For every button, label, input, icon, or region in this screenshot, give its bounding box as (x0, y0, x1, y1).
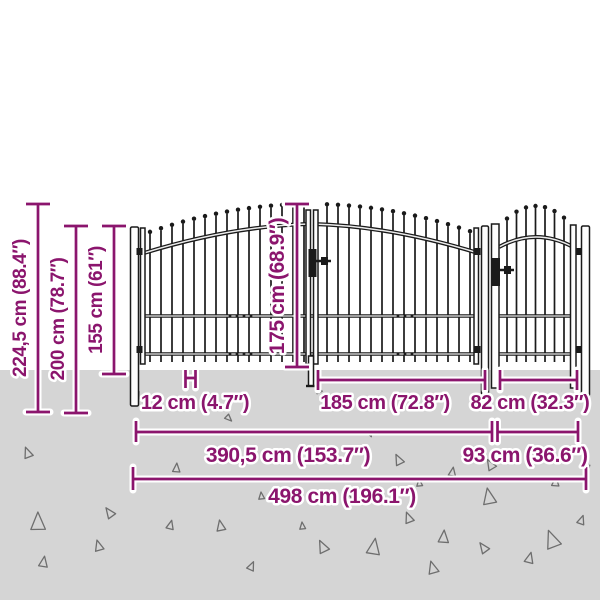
triangle-decoration (448, 466, 457, 477)
label-post-width: 12 cm (4.7″) (141, 392, 249, 414)
center-latch-knob (321, 257, 328, 265)
triangle-decoration (403, 511, 414, 524)
fence-rails (142, 224, 576, 355)
triangle-decoration (438, 529, 450, 543)
triangle-decoration (103, 505, 116, 519)
label-overall-width: 498 cm (196.1″) (268, 485, 416, 508)
right-post (582, 226, 590, 396)
triangle-decoration (94, 539, 104, 551)
label-double-gate-width: 390,5 cm (153.7″) (206, 444, 370, 467)
label-gate-leaf-width: 185 cm (72.8″) (320, 392, 450, 414)
rail-fastener-dots (229, 315, 414, 356)
triangle-decoration (166, 519, 176, 530)
label-single-leaf-width: 82 cm (32.3″) (471, 392, 590, 414)
triangle-decoration (577, 514, 587, 525)
diagram-canvas: 224,5 cm (88.4″) 200 cm (78.7″) 155 cm (… (0, 0, 600, 600)
small-gate-right-stile (571, 225, 577, 388)
triangle-decoration (477, 540, 490, 554)
triangle-decoration (22, 446, 33, 459)
triangle-decoration (224, 414, 233, 423)
small-gate-lock-icon (491, 258, 500, 286)
center-latch-icon (309, 249, 317, 277)
triangle-decoration (300, 522, 306, 529)
triangle-decoration (524, 551, 536, 564)
small-gate-lock-stile (492, 224, 500, 388)
drop-rod (309, 356, 314, 386)
label-fence-height: 155 cm (61″) (86, 246, 107, 354)
label-single-gate-width: 93 cm (36.6″) (462, 444, 587, 467)
triangle-decoration (482, 487, 496, 504)
triangle-decoration (543, 528, 562, 549)
triangle-decoration (259, 492, 265, 499)
label-post-height: 200 cm (78.7″) (48, 258, 69, 381)
triangle-decoration (427, 560, 439, 574)
center-stile-right (314, 210, 319, 364)
triangle-decoration (366, 537, 383, 556)
small-gate-lock-knob (504, 266, 511, 274)
triangle-decoration (216, 520, 226, 532)
hinge-icon (475, 346, 481, 353)
hinge-icon (137, 248, 143, 255)
triangle-decoration (173, 463, 182, 473)
label-gate-leaf-height: 175 cm (68.9″) (266, 218, 289, 354)
fence-drawing (131, 202, 590, 406)
triangle-decoration (393, 453, 405, 466)
hinge-icon (137, 346, 143, 353)
label-overall-height: 224,5 cm (88.4″) (10, 239, 31, 377)
triangle-decoration (247, 560, 258, 571)
product-dimension-diagram: 224,5 cm (88.4″) 200 cm (78.7″) 155 cm (… (0, 0, 600, 600)
triangle-decoration (31, 512, 47, 531)
hinge-icon (576, 346, 582, 353)
triangle-decoration (316, 538, 330, 553)
center-stile-left (306, 210, 311, 364)
triangle-decoration (39, 555, 50, 568)
hinge-icon (576, 248, 582, 255)
hinge-icon (475, 248, 481, 255)
